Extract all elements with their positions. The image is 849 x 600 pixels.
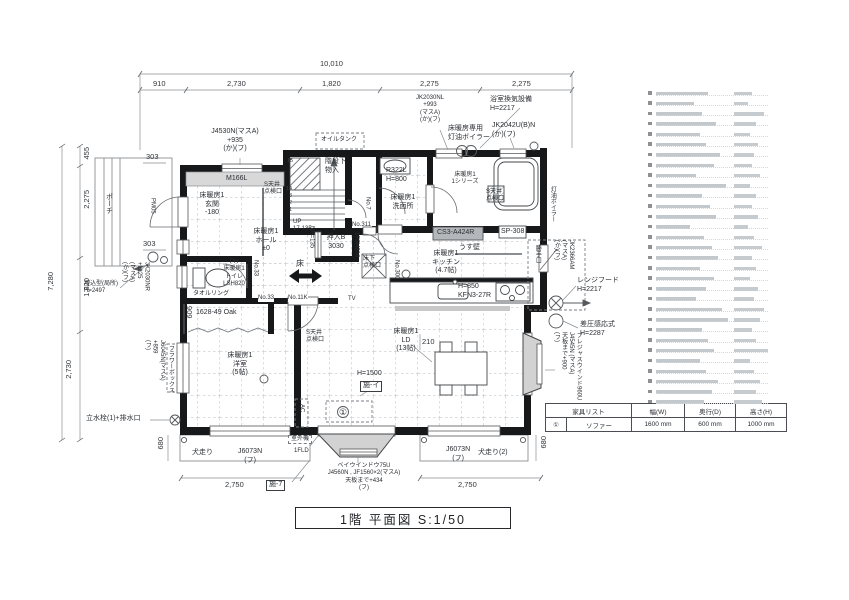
label-toyu-boiler: 灯油ボイラー bbox=[548, 186, 555, 222]
label-bay-right: プレジャスウインド960U J4545N (マスA) 天板まで+900 (フ) bbox=[552, 332, 581, 402]
legend-row bbox=[646, 222, 846, 232]
legend-row bbox=[646, 119, 846, 129]
legend-value-text bbox=[734, 122, 756, 126]
chair bbox=[465, 342, 477, 352]
legend-row bbox=[646, 273, 846, 283]
furniture-no: ① bbox=[546, 418, 567, 432]
legend-bullet-icon bbox=[648, 348, 652, 352]
label-tv: TV bbox=[348, 296, 356, 303]
legend-row bbox=[646, 294, 846, 304]
label-umekomi: 埋込型(局所) H=2497 bbox=[84, 281, 118, 296]
label-no33: No.33 bbox=[258, 295, 274, 302]
label-j6045: J6045N(マスA) +859 (フ) bbox=[143, 340, 165, 381]
label-1fsh816: 1FSH816 bbox=[352, 232, 359, 257]
furniture-list-table: 家具リスト 幅(W) 奥行(D) 高さ(H) ① ソファー 1600 mm 60… bbox=[545, 403, 787, 432]
legend-bullet-icon bbox=[648, 369, 652, 373]
furniture-header-list: 家具リスト bbox=[546, 404, 632, 418]
legend-bullet-icon bbox=[648, 91, 652, 95]
legend-row bbox=[646, 150, 846, 160]
chair bbox=[465, 385, 477, 395]
legend-bullet-icon bbox=[648, 173, 652, 177]
label-jk2030nr: JK2030NR +1125 (マスA) (か)(フ) bbox=[120, 262, 149, 291]
label-range-hood: レンジフード H=2217 bbox=[577, 277, 619, 294]
legend-bullet-icon bbox=[648, 245, 652, 249]
legend-value-text bbox=[734, 277, 750, 281]
room-bath: 床暖房1 1シリーズ bbox=[444, 172, 486, 187]
label-jk2366: JK2366AM (マスA) (か)(フ) bbox=[552, 240, 574, 269]
label-ceiling-hatch-b: S天井 点検口 bbox=[486, 189, 504, 204]
dim-680-left: 680 bbox=[156, 437, 165, 450]
legend-bullet-icon bbox=[648, 379, 652, 383]
label-sp308: SP-308 bbox=[501, 228, 524, 237]
furniture-name: ソファー bbox=[567, 418, 632, 432]
legend-leader bbox=[656, 187, 768, 188]
stair-number: 1 bbox=[289, 207, 292, 213]
label-underfloor-hatch: 床下 点検口 bbox=[363, 256, 381, 271]
room-stair-closet: 階段下 物入 bbox=[325, 158, 346, 175]
legend-value-text bbox=[734, 246, 762, 250]
dim-bottom-left: 2,750 bbox=[225, 480, 244, 489]
legend-leader bbox=[656, 280, 768, 281]
legend-bullet-icon bbox=[648, 204, 652, 208]
room-senmenjo: 床暖房1 洗面所 bbox=[382, 194, 424, 211]
dim-680-right: 680 bbox=[539, 436, 548, 449]
legend-row bbox=[646, 356, 846, 366]
furniture-height: 1000 mm bbox=[736, 418, 787, 432]
label-r322l: R322L H=800 bbox=[386, 167, 407, 184]
label-floor: 床 bbox=[296, 259, 304, 269]
legend-leader bbox=[656, 228, 768, 229]
room-oshiire: 押入B 3030 bbox=[318, 234, 354, 251]
dining-table bbox=[435, 352, 487, 385]
dim-overall-height: 7,280 bbox=[46, 272, 55, 291]
legend-value-text bbox=[734, 153, 754, 157]
legend-value-text bbox=[734, 380, 760, 384]
legend-value-text bbox=[734, 102, 748, 106]
label-j6073-left: J6073N (フ) bbox=[238, 448, 262, 465]
legend-value-text bbox=[734, 287, 758, 291]
legend-bullet-icon bbox=[648, 142, 652, 146]
legend-row bbox=[646, 376, 846, 386]
legend-value-text bbox=[734, 400, 762, 404]
legend-bullet-icon bbox=[648, 400, 652, 404]
label-rissuisen: 立水栓(1)+排水口 bbox=[86, 415, 141, 424]
legend-bullet-icon bbox=[648, 225, 652, 229]
label-jk2030nl: JK2030NL +993 (マスA) (か)(フ) bbox=[408, 95, 452, 124]
label-pm05: PM05 bbox=[148, 198, 155, 214]
legend-row bbox=[646, 191, 846, 201]
legend-row bbox=[646, 263, 846, 273]
legend-value-text bbox=[734, 370, 754, 374]
stair-number: 15 bbox=[287, 158, 293, 164]
dim-303-b: 303 bbox=[143, 239, 156, 248]
legend-value-text bbox=[734, 112, 764, 116]
legend-leader bbox=[656, 362, 768, 363]
label-porch: ポーチ bbox=[104, 193, 113, 214]
legend-value-text bbox=[734, 215, 758, 219]
label-j4530: J4530N(マスA) +935 (か)(フ) bbox=[200, 128, 270, 154]
legend-value-text bbox=[734, 164, 752, 168]
legend-value-text bbox=[734, 225, 748, 229]
dim-top-2: 2,730 bbox=[227, 79, 246, 88]
legend-value-text bbox=[734, 236, 754, 240]
dim-303-a: 303 bbox=[146, 152, 159, 161]
bay-window-bottom bbox=[318, 434, 395, 457]
legend-row bbox=[646, 304, 846, 314]
legend-row bbox=[646, 129, 846, 139]
label-thin-wall: うす壁 bbox=[459, 244, 480, 253]
legend-value-text bbox=[734, 205, 752, 209]
label-inubashiri-left: 犬走り bbox=[192, 449, 213, 458]
label-flower-box: フラワーボックス bbox=[166, 345, 173, 393]
legend-bullet-icon bbox=[648, 307, 652, 311]
label-se-i: 施-イ bbox=[360, 381, 382, 392]
legend-row bbox=[646, 160, 846, 170]
stair-number: 3 bbox=[289, 193, 292, 199]
drawing-title: 1階 平面図 S:1/50 bbox=[295, 507, 511, 529]
dim-top-4: 2,275 bbox=[420, 79, 439, 88]
dim-left-1: 455 bbox=[82, 147, 91, 160]
legend-value-text bbox=[734, 318, 760, 322]
legend-value-text bbox=[734, 390, 756, 394]
legend-value-text bbox=[734, 194, 756, 198]
legend-bullet-icon bbox=[648, 184, 652, 188]
label-cs3: CS3-A424R bbox=[437, 229, 474, 238]
label-nh135: NH=135 bbox=[307, 226, 314, 248]
room-genkan: 床暖房1 玄関 -180 bbox=[186, 192, 238, 218]
legend-bullet-icon bbox=[648, 163, 652, 167]
legend-value-text bbox=[734, 133, 750, 137]
legend-value-text bbox=[734, 267, 756, 271]
meter-icon bbox=[148, 252, 158, 262]
furniture-depth: 600 mm bbox=[685, 418, 736, 432]
legend-bullet-icon bbox=[648, 256, 652, 260]
label-h1500: H=1500 bbox=[357, 370, 382, 379]
label-oak-shelf: 1628-49 Oak bbox=[196, 309, 236, 318]
dim-top-1: 910 bbox=[153, 79, 166, 88]
room-yoshitsu: 床暖房1 洋室 (5帖) bbox=[214, 352, 266, 378]
vent-cap-icon bbox=[530, 142, 538, 150]
legend-row bbox=[646, 170, 846, 180]
legend-row bbox=[646, 242, 846, 252]
legend-bullet-icon bbox=[648, 276, 652, 280]
legend-bullet-icon bbox=[648, 112, 652, 116]
label-no7: No.7 bbox=[363, 197, 370, 210]
dim-top-5: 2,275 bbox=[512, 79, 531, 88]
label-no311: No.311 bbox=[352, 222, 371, 229]
legend-value-text bbox=[734, 349, 768, 353]
furniture-width: 1600 mm bbox=[632, 418, 685, 432]
label-backdoor: 勝手口 bbox=[533, 245, 540, 263]
legend-row bbox=[646, 201, 846, 211]
label-ceiling-hatch-a: S天井 点検口 bbox=[264, 182, 282, 197]
room-toilet: PH 床暖房1 トイレ LSH820 bbox=[212, 259, 256, 288]
legend-row bbox=[646, 335, 846, 345]
pressure-vent-icon bbox=[549, 314, 563, 328]
dim-top-3: 1,820 bbox=[322, 79, 341, 88]
label-no33-v: No.33 bbox=[251, 260, 258, 276]
legend-value-text bbox=[734, 184, 750, 188]
legend-bullet-icon bbox=[648, 235, 652, 239]
kitchen-counter-edge bbox=[390, 278, 533, 282]
legend-bullet-icon bbox=[648, 390, 652, 394]
dim-overall-width: 10,010 bbox=[320, 59, 343, 68]
legend-row bbox=[646, 212, 846, 222]
legend-value-text bbox=[734, 339, 756, 343]
legend-row bbox=[646, 181, 846, 191]
legend-row bbox=[646, 397, 846, 407]
legend-leader bbox=[656, 105, 768, 106]
dim-left-4: 2,730 bbox=[64, 360, 73, 379]
legend-value-text bbox=[734, 297, 754, 301]
label-se-7: 施-7 bbox=[266, 480, 285, 491]
stair-number: 2 bbox=[289, 200, 292, 206]
label-boiler-heater: 床暖房専用 灯油ボイラー bbox=[448, 125, 490, 142]
legend-value-text bbox=[734, 92, 752, 96]
legend-bullet-icon bbox=[648, 101, 652, 105]
legend-bullet-icon bbox=[648, 338, 652, 342]
legend-leader bbox=[656, 136, 768, 137]
chair bbox=[440, 342, 452, 352]
counter-shadow bbox=[395, 306, 510, 311]
legend-value-text bbox=[734, 308, 764, 312]
bay-window-right bbox=[523, 333, 542, 395]
label-jk2042: JK2042U(B)N (か)(フ) bbox=[492, 122, 535, 139]
legend-row bbox=[646, 387, 846, 397]
label-no300: No.300 bbox=[392, 260, 399, 279]
legend-bullet-icon bbox=[648, 122, 652, 126]
room-kitchen: 床暖房1 キッチン (4.7帖) bbox=[420, 250, 472, 276]
legend-value-text bbox=[734, 359, 750, 363]
label-1fld: 1FLD bbox=[294, 448, 309, 455]
label-pressure-vent: 差圧感応式 H=2287 bbox=[580, 321, 615, 338]
dim-606: 606 bbox=[185, 306, 194, 319]
label-m166l: M166L bbox=[226, 175, 247, 184]
dim-left-2: 2,275 bbox=[82, 190, 91, 209]
legend-bullet-icon bbox=[648, 194, 652, 198]
dim-bottom-right: 2,750 bbox=[458, 480, 477, 489]
furniture-row: ① ソファー 1600 mm 600 mm 1000 mm bbox=[546, 418, 787, 432]
legend-value-text bbox=[734, 256, 752, 260]
label-oil-tank: オイルタンク bbox=[321, 137, 357, 144]
legend-bullet-icon bbox=[648, 287, 652, 291]
legend-bullet-icon bbox=[648, 215, 652, 219]
label-bath-vent: 浴室換気設備 H=2217 bbox=[490, 96, 532, 113]
legend-bullet-icon bbox=[648, 328, 652, 332]
room-hall: 床暖房1 ホール ±0 bbox=[240, 228, 292, 254]
label-inubashiri-right: 犬走り(2) bbox=[478, 449, 508, 458]
legend-bullet-icon bbox=[648, 153, 652, 157]
legend-row bbox=[646, 366, 846, 376]
legend-row bbox=[646, 98, 846, 108]
chair bbox=[440, 385, 452, 395]
legend-bullet-icon bbox=[648, 297, 652, 301]
legend-row bbox=[646, 345, 846, 355]
specification-legend bbox=[646, 88, 846, 407]
label-no11k: No.11K bbox=[288, 295, 308, 302]
legend-value-text bbox=[734, 328, 752, 332]
label-ac: AC bbox=[297, 404, 304, 412]
legend-bullet-icon bbox=[648, 266, 652, 270]
legend-value-text bbox=[734, 174, 760, 178]
legend-row bbox=[646, 284, 846, 294]
label-sofa-number: ① bbox=[339, 407, 347, 418]
legend-row bbox=[646, 232, 846, 242]
legend-bullet-icon bbox=[648, 318, 652, 322]
legend-row bbox=[646, 253, 846, 263]
stair-number: 14 bbox=[286, 186, 292, 192]
legend-value-text bbox=[734, 143, 758, 147]
legend-bullet-icon bbox=[648, 132, 652, 136]
legend-row bbox=[646, 325, 846, 335]
label-outdoor-unit: 室外機 bbox=[288, 435, 312, 444]
toilet-tank bbox=[193, 268, 205, 288]
room-ld: 床暖房1 LD (13帖) bbox=[386, 328, 426, 354]
legend-row bbox=[646, 109, 846, 119]
label-ceiling-hatch-c: S天井 点検口 bbox=[306, 330, 324, 345]
floor-plan-page: 10,010 910 2,730 1,820 2,275 2,275 455 2… bbox=[0, 0, 849, 600]
label-j6073-right: J6073N (フ) bbox=[446, 446, 470, 463]
label-bay-bottom: ベイウインドウ75U J4560N , JF1560×2(マスA) 天板まで+4… bbox=[312, 463, 416, 492]
legend-row bbox=[646, 139, 846, 149]
legend-bullet-icon bbox=[648, 359, 652, 363]
legend-row bbox=[646, 315, 846, 325]
label-h850: H=850 KFN3-27R bbox=[458, 283, 491, 300]
legend-row bbox=[646, 88, 846, 98]
label-towel-ring: タオルリング bbox=[193, 291, 229, 298]
